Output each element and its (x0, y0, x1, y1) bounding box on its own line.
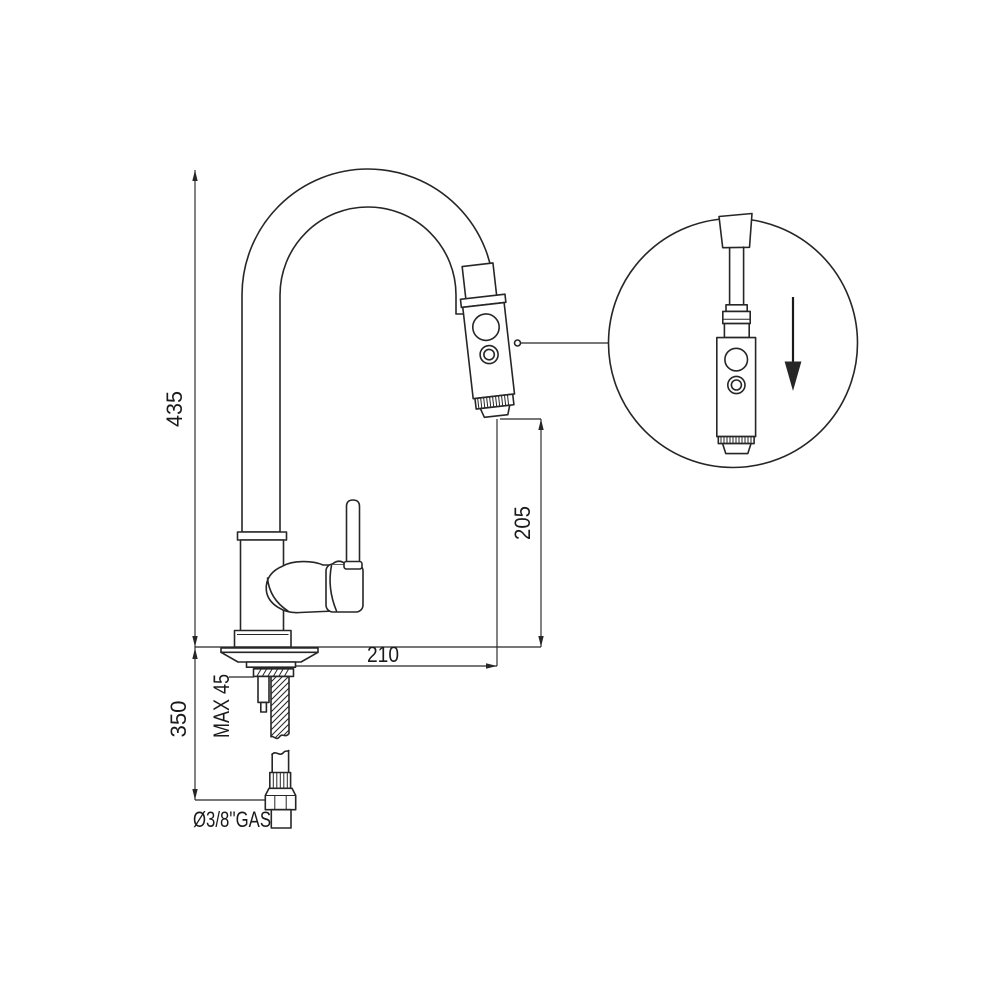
dim-label-spout-reach: 210 (367, 642, 399, 667)
detail-nozzle (723, 444, 751, 454)
stream-button-inner (483, 349, 495, 361)
under-counter-assembly (254, 662, 296, 828)
deck-plate (221, 652, 318, 662)
detail-spray-button-icon (725, 348, 748, 371)
dim-label-outlet-height: 205 (510, 506, 535, 540)
dim-label-below-counter: 350 (166, 701, 191, 738)
down-arrow-icon (785, 362, 802, 392)
deck-plate-lip (247, 662, 296, 667)
leader-dot-icon (515, 340, 521, 346)
dim-label-total-height: 435 (162, 391, 187, 427)
spout-joint-ring (238, 532, 287, 540)
detail-stream-button-inner (731, 380, 741, 390)
faucet-body (221, 169, 494, 667)
arrow-up-icon (192, 170, 197, 181)
detail-connector-lower (724, 324, 749, 338)
fixing-stud-tip (261, 702, 267, 712)
gooseneck-spout (242, 169, 494, 532)
lever-handle (347, 500, 360, 566)
dim-label-max-thickness: MAX 45 (209, 674, 234, 738)
arrow-down-icon (538, 636, 543, 647)
detail-hose-collar (726, 305, 747, 312)
arrow-up-icon (538, 419, 543, 430)
faucet-base (235, 631, 292, 648)
lever-handle-base (344, 562, 362, 570)
detail-callout (515, 214, 858, 468)
spray-head (457, 262, 519, 418)
handle-housing (326, 564, 363, 612)
detail-connector-upper (723, 311, 750, 323)
faucet-technical-drawing: 435 205 210 350 MAX 45 Ø3/8''GAS (0, 0, 1000, 1000)
arrow-right-icon (486, 663, 497, 668)
dim-label-gas-connection: Ø3/8''GAS (193, 807, 271, 832)
arrow-up-icon (192, 648, 197, 659)
fixing-stud (258, 676, 269, 702)
gas-hex-nut (265, 788, 295, 809)
arrow-down-icon (192, 789, 197, 800)
detail-spout-end (719, 214, 752, 248)
arrow-down-icon (192, 636, 197, 647)
gas-connector-end (271, 810, 291, 828)
technical-drawing-page: 435 205 210 350 MAX 45 Ø3/8''GAS (0, 0, 1000, 1000)
hose-break-line (272, 751, 289, 755)
